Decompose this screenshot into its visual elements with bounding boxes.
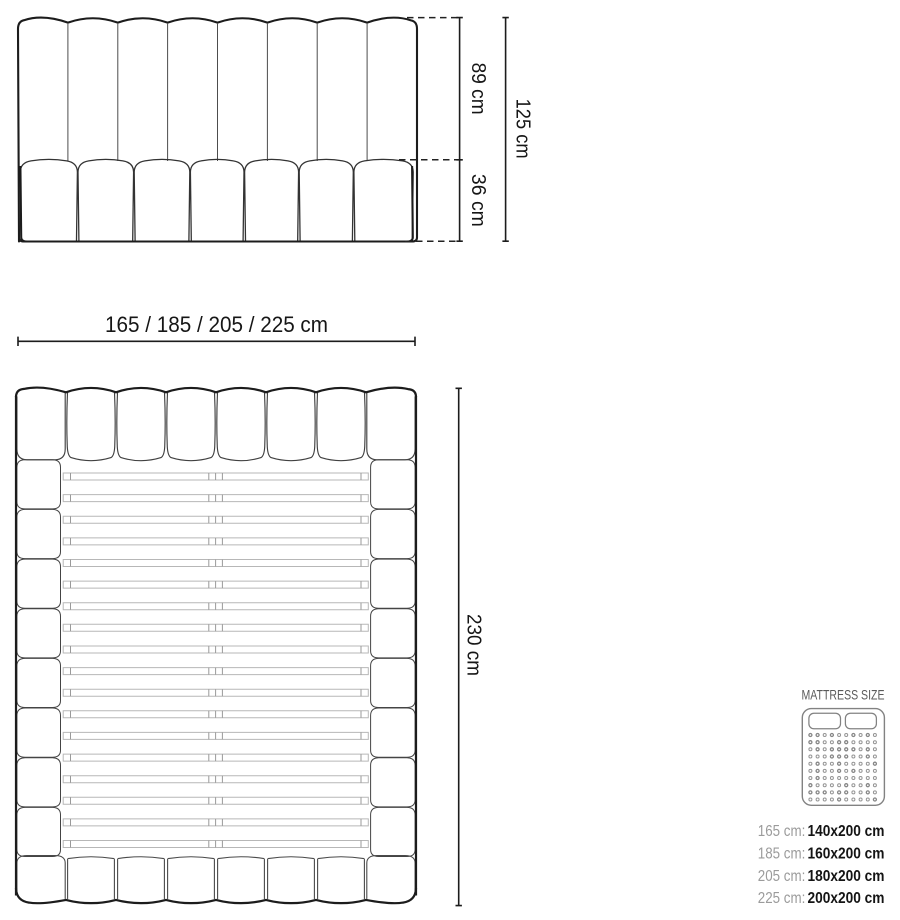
svg-text:36 cm: 36 cm — [467, 174, 490, 227]
svg-text:125 cm: 125 cm — [512, 99, 535, 159]
svg-text:180x200 cm: 180x200 cm — [808, 868, 885, 885]
svg-text:225 cm:: 225 cm: — [758, 890, 806, 907]
svg-text:165 cm:: 165 cm: — [758, 823, 806, 840]
svg-text:140x200 cm: 140x200 cm — [808, 823, 885, 840]
svg-text:230 cm: 230 cm — [463, 614, 486, 676]
svg-text:200x200 cm: 200x200 cm — [808, 890, 885, 907]
svg-text:89 cm: 89 cm — [467, 63, 490, 115]
svg-text:160x200 cm: 160x200 cm — [808, 845, 885, 862]
svg-text:MATTRESS SIZE: MATTRESS SIZE — [802, 686, 885, 702]
svg-text:185 cm:: 185 cm: — [758, 845, 806, 862]
svg-text:205 cm:: 205 cm: — [758, 868, 806, 885]
svg-text:165 / 185 / 205 / 225 cm: 165 / 185 / 205 / 225 cm — [105, 312, 328, 337]
